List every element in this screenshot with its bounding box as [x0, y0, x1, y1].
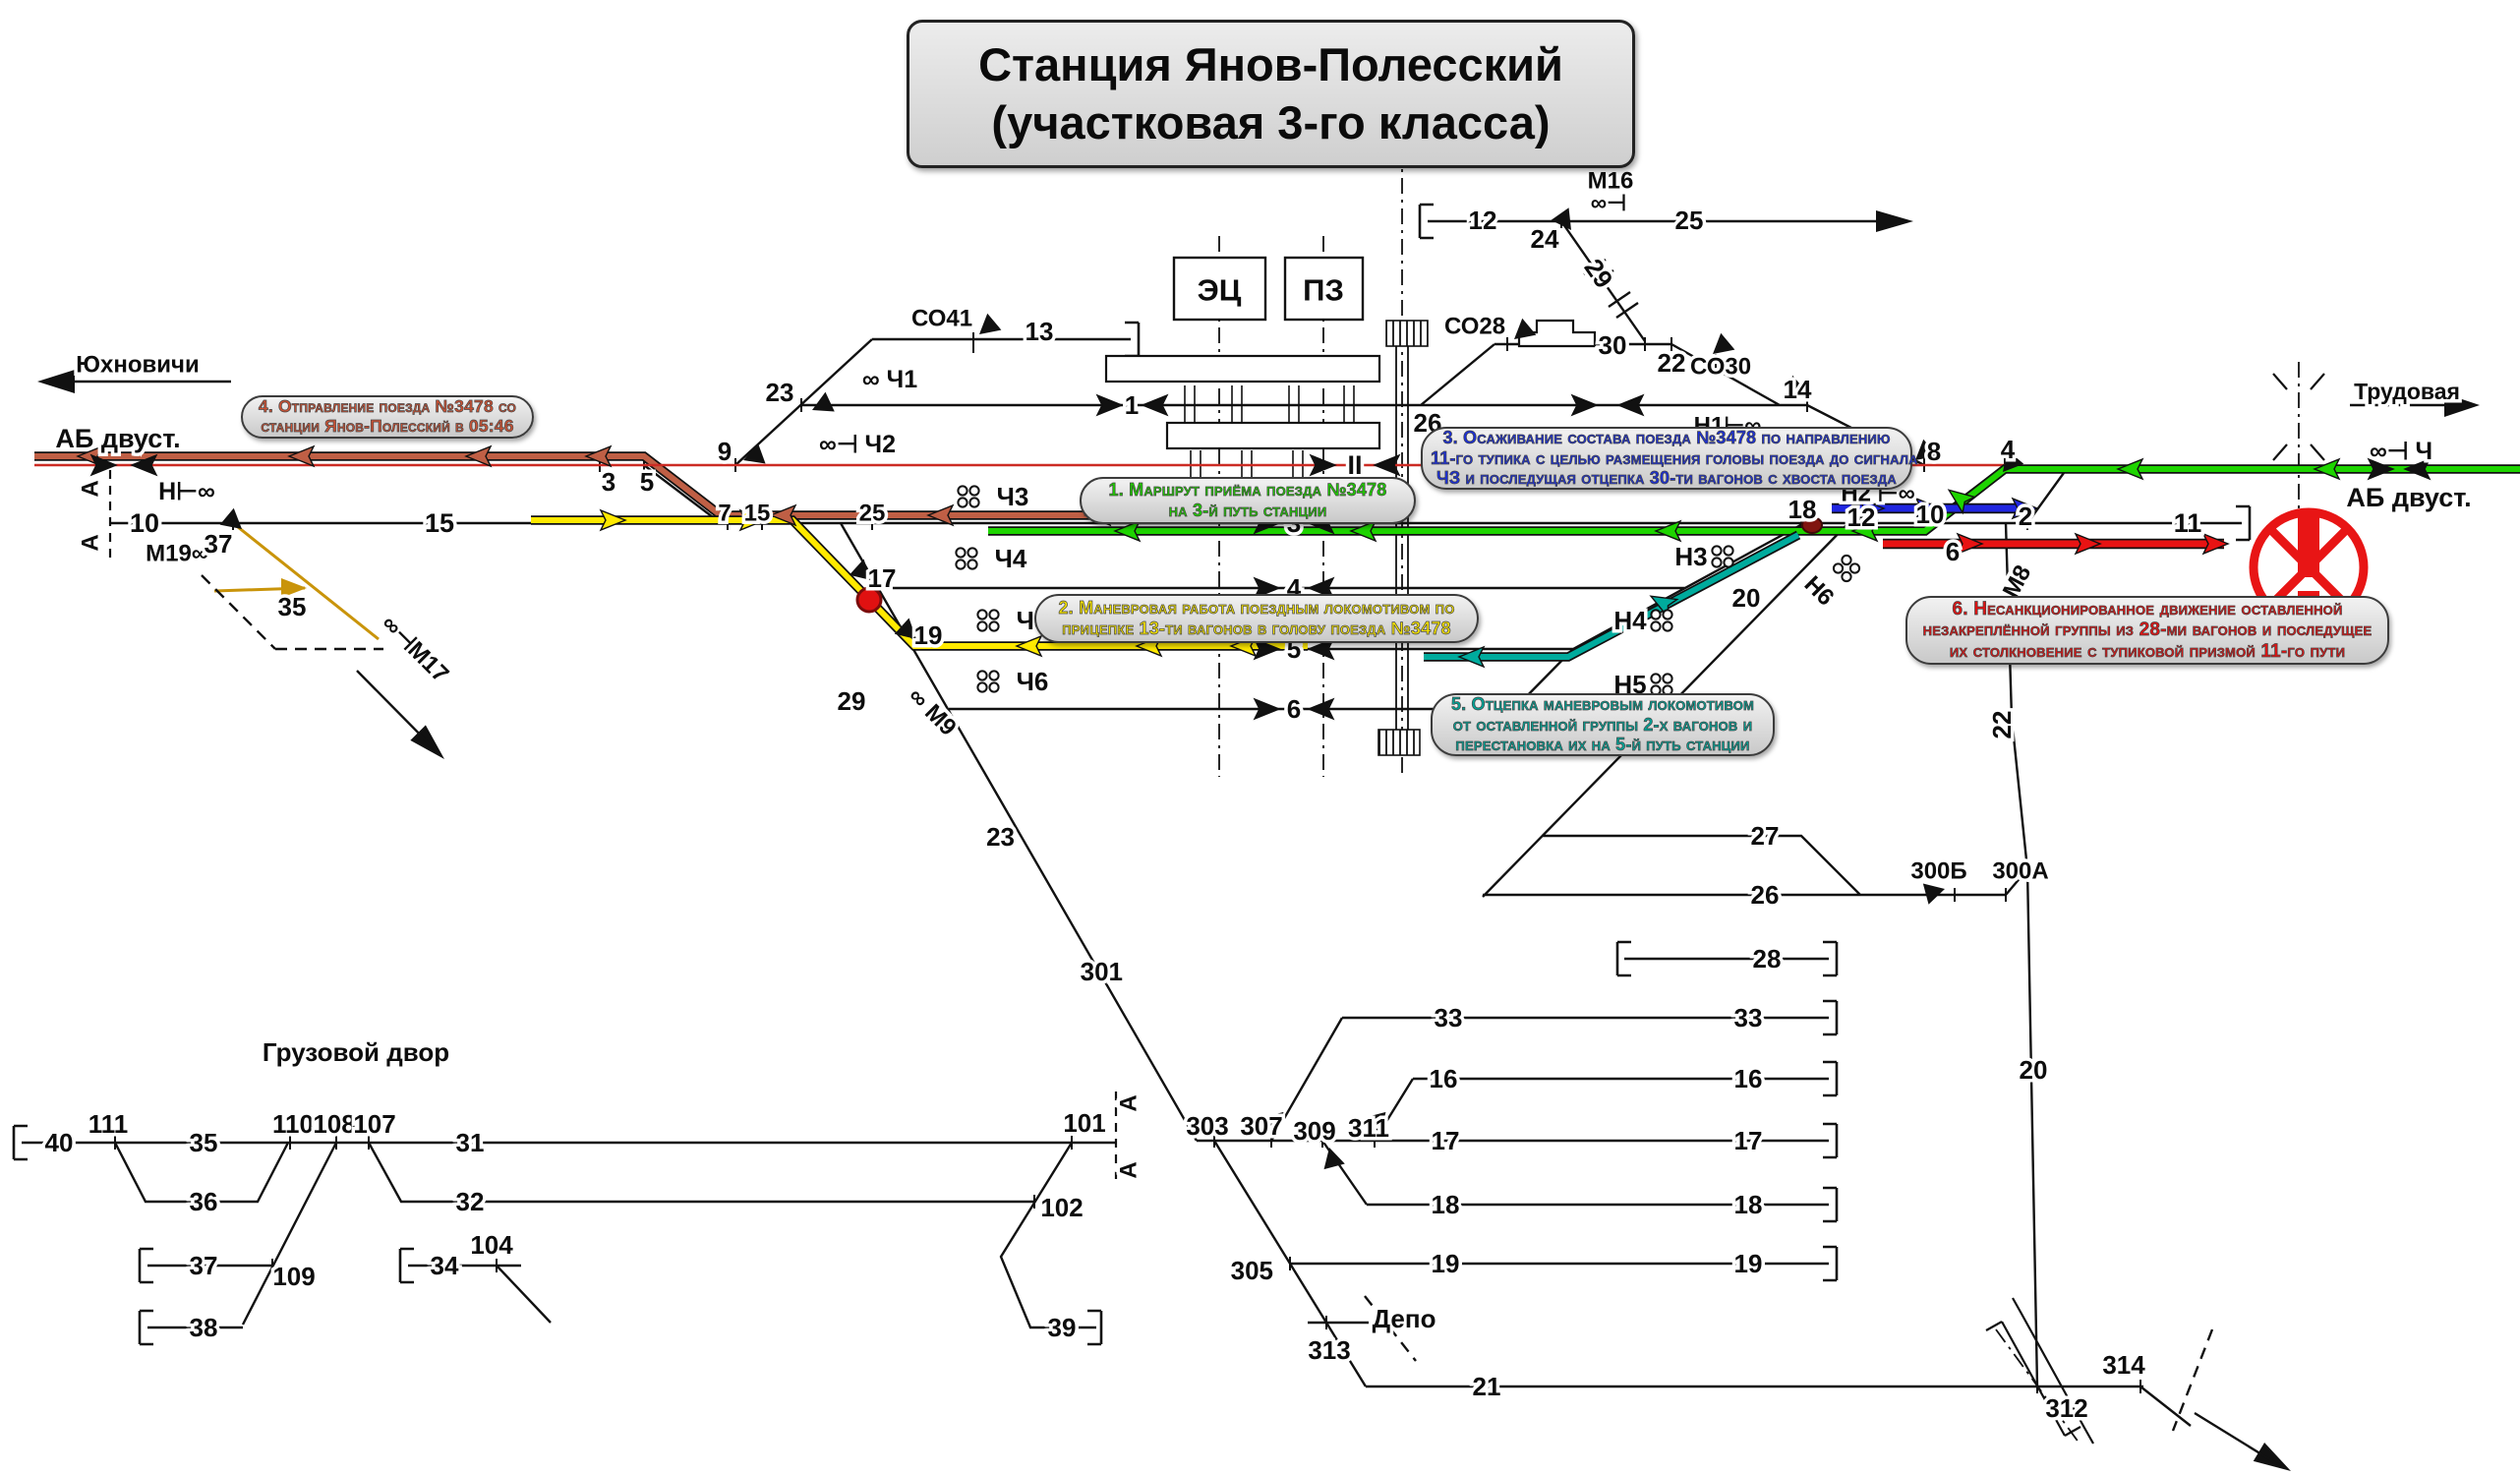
switch-300a-label: 300А [1992, 858, 2048, 885]
track-II-label: II [1347, 450, 1362, 480]
switch-314-label: 314 [2102, 1350, 2145, 1380]
dashed-tracks [202, 575, 2212, 1431]
station-title-line2: (участковая 3-го класса) [909, 94, 1632, 152]
switch-311-label: 311 [1348, 1113, 1389, 1143]
signal-m16-glyph-label: ∞⊣ [1591, 190, 1626, 215]
boundary-a4-label: А [1116, 1161, 1143, 1178]
switch-25-label: 25 [859, 501, 886, 527]
switch-108-label: 108 [313, 1109, 355, 1139]
dest-yukhnovichi-label: Юхновичи [76, 352, 199, 379]
switch-24-label: 24 [1531, 224, 1559, 254]
track-25-label: 25 [1675, 206, 1704, 235]
track-30-label: 30 [1599, 330, 1627, 360]
switch-6-label: 6 [1946, 537, 1960, 566]
track-19r-label: 19 [1734, 1249, 1763, 1278]
n3-dwarf-icon [1712, 546, 1732, 566]
track-18r-label: 18 [1734, 1190, 1763, 1219]
track-20-label: 20 [2020, 1055, 2048, 1085]
annotation-3-line1: 3. Осаживание состава поезда №3478 по на… [1431, 428, 1903, 448]
switch-17-label: 17 [868, 563, 897, 593]
switch-8-label: 8 [1927, 437, 1941, 466]
switch-23L-label: 23 [986, 822, 1015, 852]
track-37-label: 37 [190, 1251, 218, 1280]
switch-29b-label: 29 [1578, 254, 1618, 294]
track-39-label: 39 [1048, 1313, 1077, 1342]
track-12-label: 12 [1469, 206, 1497, 235]
track-40-label: 40 [45, 1128, 74, 1157]
switch-110-label: 110 [272, 1109, 314, 1139]
signal-n6-label: Н6 [1799, 571, 1840, 612]
track-16r-label: 16 [1734, 1064, 1763, 1093]
annotation-6-line2: незакреплённой группы из 28-ми вагонов и… [1915, 619, 2379, 641]
n5-dwarf-icon [1651, 674, 1671, 694]
signal-ch4-label: Ч4 [995, 544, 1027, 573]
switch-300b-label: 300Б [1910, 858, 1966, 885]
switch-20-label: 20 [1732, 583, 1761, 613]
signal-ch-right-label: ∞⊣ Ч [2370, 438, 2432, 465]
track-28-label: 28 [1753, 944, 1782, 973]
switch-104-label: 104 [470, 1230, 513, 1260]
switch-22v-label: 22 [1987, 711, 2017, 739]
switch-4-label: 4 [2001, 435, 2016, 464]
track-36-label: 36 [190, 1187, 218, 1216]
annotation-1-line2: на 3-й путь станции [1089, 501, 1406, 521]
switch-312-label: 312 [2045, 1393, 2087, 1423]
ch5-dwarf-icon [977, 610, 998, 630]
annotation-4-line1: 4. Отправление поезда №3478 со [251, 397, 524, 417]
track-16-label: 16 [1430, 1064, 1458, 1093]
switch-109-label: 109 [272, 1262, 315, 1291]
signal-m9-label: ∞ М9 [903, 682, 961, 740]
annotation-backing-move: 3. Осаживание состава поезда №3478 по на… [1421, 427, 1912, 490]
switch-101-label: 101 [1063, 1108, 1105, 1138]
annotation-departure: 4. Отправление поезда №3478 со станции Я… [241, 395, 534, 439]
ch3-dwarf-icon [958, 486, 978, 506]
ab-dvust-left-label: АБ двуст. [55, 424, 180, 453]
switch-2-label: 2 [2019, 501, 2032, 531]
signal-m17-label: ∞⊣М17 [377, 611, 454, 688]
switch-15-label: 15 [744, 501, 771, 527]
annotation-4-line2: станции Янов-Полесский в 05:46 [251, 417, 524, 437]
station-diagram: ЮхновичиАБ двуст.Н⊢∞10М19∞371535∞⊣М17359… [0, 0, 2520, 1475]
track-33r-label: 33 [1734, 1003, 1763, 1032]
switch-23-label: 23 [766, 378, 794, 407]
switch-10-label: 10 [1916, 500, 1945, 529]
annotation-receive-route: 1. Маршрут приёма поезда №3478 на 3-й пу… [1080, 477, 1416, 524]
track-schematic-svg: ЮхновичиАБ двуст.Н⊢∞10М19∞371535∞⊣М17359… [0, 0, 2520, 1475]
annotation-6-line3: их столкновение с тупиковой призмой 11-г… [1915, 641, 2379, 663]
platform-1 [1106, 356, 1379, 382]
boundary-a1-label: А [78, 480, 104, 497]
switch-3-label: 3 [602, 467, 615, 497]
switch-307-label: 307 [1240, 1111, 1282, 1141]
track-27-label: 27 [1751, 821, 1780, 851]
switch-313-label: 313 [1308, 1335, 1350, 1365]
signal-so30-label: СО30 [1690, 354, 1751, 381]
switch-37-label: 37 [205, 529, 233, 559]
switch-309-label: 309 [1293, 1116, 1335, 1146]
switch-29-label: 29 [838, 686, 866, 716]
ch4-dwarf-icon [956, 548, 976, 568]
switch-107-label: 107 [353, 1109, 395, 1139]
platform-2 [1167, 423, 1379, 448]
ch6-dwarf-icon [977, 671, 998, 691]
signal-ch6-label: Ч6 [1017, 667, 1049, 696]
switch-7-label: 7 [718, 501, 731, 527]
boundary-a3-label: А [1116, 1094, 1143, 1111]
annotation-1-line1: 1. Маршрут приёма поезда №3478 [1089, 480, 1406, 501]
boundary-a-lines [110, 470, 1116, 1185]
signal-m19-label: М19∞ [146, 541, 208, 567]
track-21-label: 21 [1473, 1372, 1501, 1401]
n6-dwarf-icon [1832, 554, 1861, 583]
track-11-label: 11 [2174, 508, 2202, 538]
signal-so28-label: СО28 [1444, 314, 1505, 340]
boundary-a2-label: А [78, 534, 104, 551]
annotation-runaway-collision: 6. Несанкционированное движение оставлен… [1905, 596, 2389, 665]
track-32-label: 32 [456, 1187, 485, 1216]
n4-dwarf-icon [1651, 610, 1671, 630]
annotation-5-line2: от оставленной группы 2-х вагонов и [1440, 715, 1765, 736]
arrow-track12-east [1876, 210, 1913, 232]
annotation-5-line3: перестановка их на 5-й путь станции [1440, 735, 1765, 755]
signal-ch3-label: Ч3 [997, 482, 1029, 511]
switch-19-label: 19 [914, 620, 943, 650]
track-35-label: 35 [190, 1128, 218, 1157]
track-13-label: 13 [1026, 317, 1054, 346]
switch-35-label: 35 [278, 592, 307, 621]
arrow-southeast [2254, 1443, 2297, 1475]
arrow-yukhnovichi [37, 370, 75, 393]
annotation-5-line1: 5. Отцепка маневровым локомотивом [1440, 694, 1765, 715]
signal-n4-label: Н4 [1613, 606, 1647, 635]
signal-ch1-label: ∞ Ч1 [862, 366, 917, 393]
annotation-2-line1: 2. Маневровая работа поездным локомотиво… [1044, 598, 1469, 619]
track-10-label: 10 [130, 508, 159, 538]
annotation-uncouple-transfer: 5. Отцепка маневровым локомотивом от ост… [1431, 693, 1775, 756]
switch-305-label: 305 [1231, 1256, 1273, 1285]
switch-102-label: 102 [1040, 1193, 1083, 1222]
signal-ch2-label: ∞⊣ Ч2 [819, 431, 896, 458]
annotation-shunt-work: 2. Маневровая работа поездным локомотиво… [1034, 594, 1479, 643]
switch-9-label: 9 [718, 437, 732, 466]
switch-301-label: 301 [1081, 957, 1123, 986]
annotation-2-line2: прицепке 13-ти вагонов в голову поезда №… [1044, 619, 1469, 639]
track-18-label: 18 [1432, 1190, 1460, 1219]
station-title-line1: Станция Янов-Полесский [909, 36, 1632, 94]
station-title: Станция Янов-Полесский (участковая 3-го … [907, 20, 1635, 168]
switch-12-label: 12 [1847, 502, 1876, 532]
track-6-label: 6 [1287, 694, 1301, 724]
track-26-label: 26 [1751, 880, 1780, 910]
signal-so41-label: СО41 [911, 306, 972, 332]
dest-trudovaya-label: Трудовая [2354, 379, 2460, 404]
yard-title-label: Грузовой двор [263, 1037, 449, 1067]
switch-5-label: 5 [640, 467, 654, 497]
annotation-3-line3: ЧЗ и последущая отцепка 30-ти вагонов с … [1431, 468, 1903, 489]
post-pz-label-label: ПЗ [1303, 273, 1344, 308]
track-31-label: 31 [456, 1128, 485, 1157]
switch-22-label: 22 [1658, 348, 1686, 378]
track-I-label: 1 [1125, 390, 1139, 420]
track-17-label: 17 [1432, 1126, 1460, 1155]
gold-siding [214, 523, 379, 639]
signal-n3-label: Н3 [1674, 542, 1707, 571]
track-34-label: 34 [431, 1251, 459, 1280]
switch-18-label: 18 [1788, 495, 1817, 524]
ab-dvust-right-label: АБ двуст. [2346, 483, 2471, 512]
track-33-label: 33 [1435, 1003, 1463, 1032]
track-38-label: 38 [190, 1313, 218, 1342]
footbridge [1378, 321, 1428, 755]
post-ec-label-label: ЭЦ [1198, 273, 1242, 308]
switch-303-label: 303 [1186, 1111, 1228, 1141]
annotation-3-line2: 11-го тупика с целью размещения головы п… [1431, 448, 1903, 469]
track-19-label: 19 [1432, 1249, 1460, 1278]
track-15-label: 15 [425, 508, 454, 538]
switch-14-label: 14 [1784, 375, 1812, 404]
track-17r-label: 17 [1734, 1126, 1763, 1155]
depot-label-label: Депо [1373, 1304, 1436, 1333]
annotation-6-line1: 6. Несанкционированное движение оставлен… [1915, 599, 2379, 620]
switch-111-label: 111 [88, 1109, 129, 1139]
signal-n-label: Н⊢∞ [158, 478, 215, 505]
